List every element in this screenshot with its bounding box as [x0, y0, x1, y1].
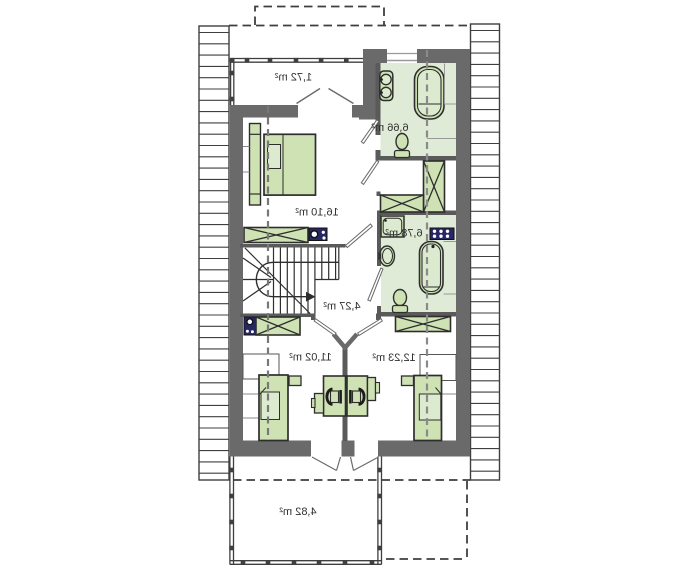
- svg-text:11,02 m²: 11,02 m²: [289, 351, 332, 363]
- svg-text:6,78 m²: 6,78 m²: [385, 227, 423, 239]
- svg-text:16,10 m²: 16,10 m²: [295, 206, 339, 218]
- svg-text:1,72 m²: 1,72 m²: [275, 71, 313, 83]
- svg-text:12,23 m²: 12,23 m²: [372, 352, 416, 364]
- svg-text:4,27 m²: 4,27 m²: [323, 300, 361, 312]
- svg-text:4,82 m²: 4,82 m²: [279, 506, 317, 518]
- svg-text:6,66 m²: 6,66 m²: [371, 122, 409, 134]
